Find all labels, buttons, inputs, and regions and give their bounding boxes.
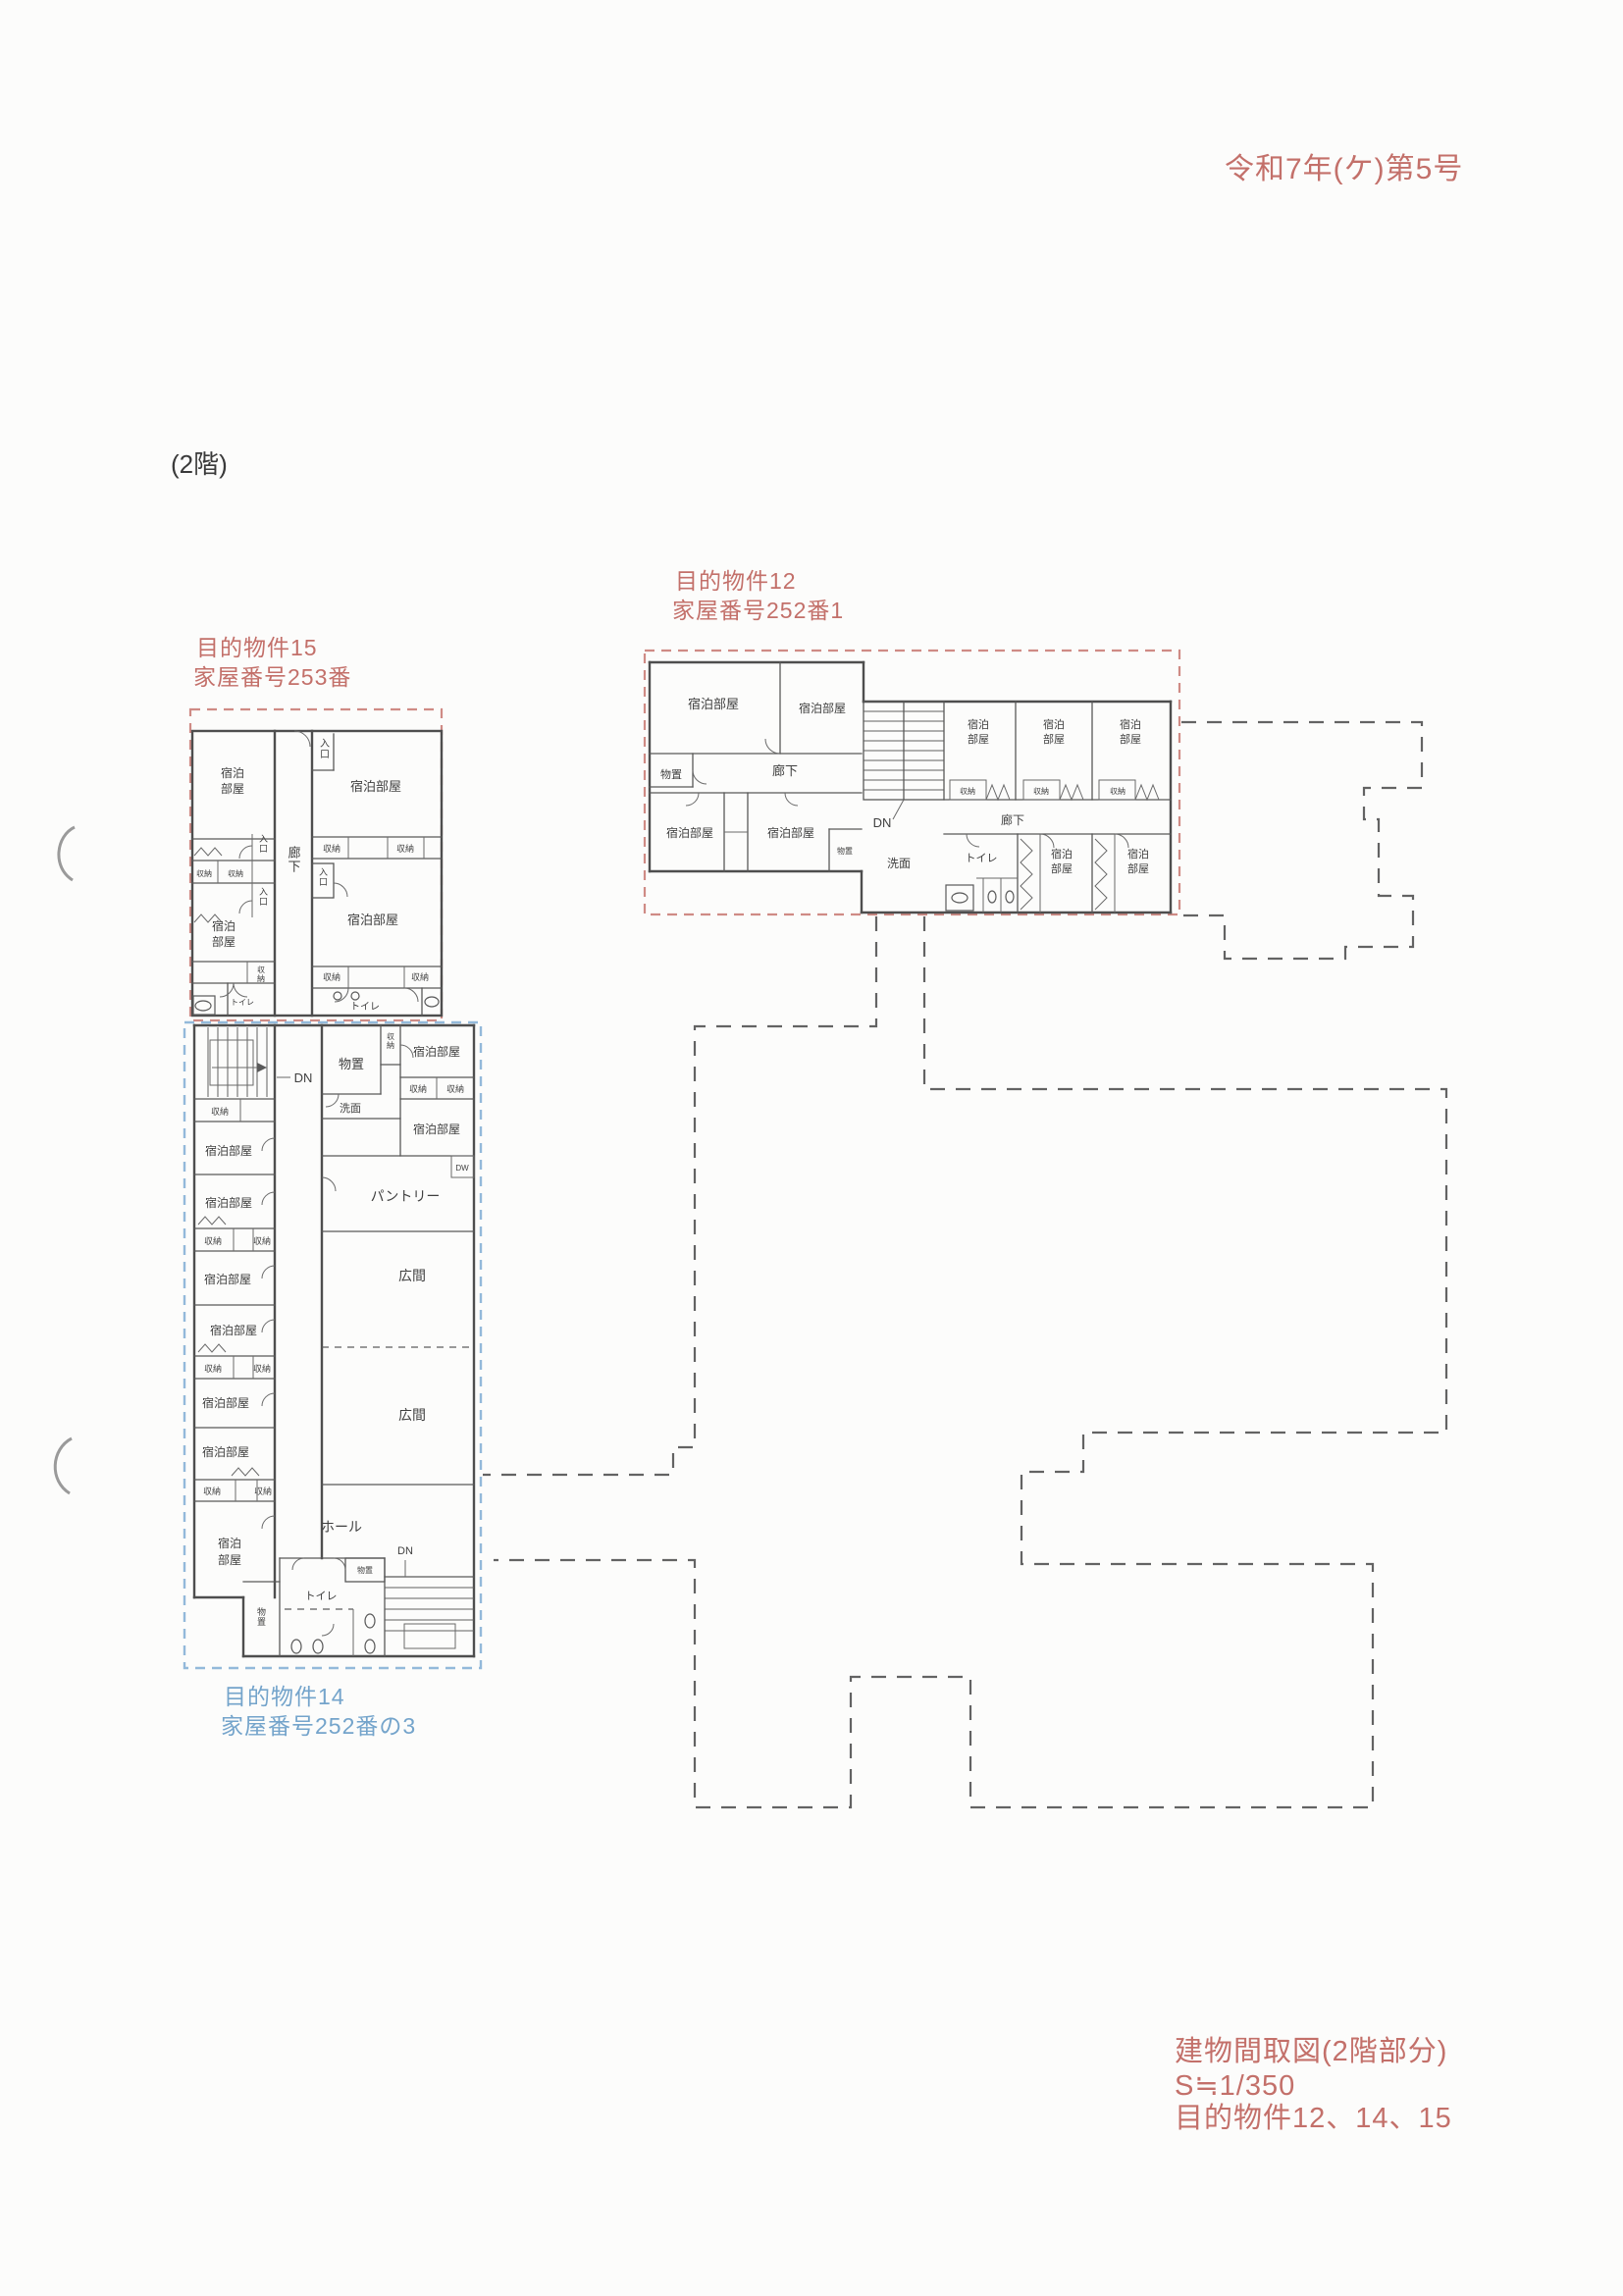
storage-label: 収納 bbox=[409, 1083, 427, 1094]
corridor-label: 廊下 bbox=[287, 845, 301, 873]
storage-label: 収納 bbox=[203, 1486, 221, 1496]
corridor-label: 廊下 bbox=[772, 763, 798, 778]
room-label-guest: 宿泊部屋 bbox=[347, 913, 398, 927]
entrance-label: 入口 bbox=[258, 887, 268, 907]
storage-label: 収納 bbox=[204, 1235, 222, 1246]
room-label-guest: 部屋 bbox=[218, 1552, 241, 1567]
room-label-guest: 宿泊部屋 bbox=[204, 1272, 251, 1286]
storage-label: 収納 bbox=[396, 843, 414, 854]
room-label-guest: 宿泊 bbox=[212, 918, 236, 933]
toilet-label: トイレ bbox=[350, 1002, 380, 1013]
room-label-guest: 宿泊部屋 bbox=[210, 1323, 257, 1337]
room-label-guest: 宿泊 bbox=[221, 765, 244, 780]
hall-label: 広間 bbox=[398, 1407, 426, 1423]
storeroom-label: 物置 bbox=[837, 846, 853, 856]
titleblock-title: 建物間取図(2階部分) bbox=[1175, 2035, 1447, 2067]
dumbwaiter-label: DW bbox=[455, 1164, 469, 1173]
storage-label: 収納 bbox=[446, 1083, 464, 1094]
room-label-guest: 宿泊部屋 bbox=[666, 825, 713, 840]
room-label-guest: 宿泊 bbox=[1120, 717, 1141, 731]
storage-label: 収納 bbox=[254, 1486, 272, 1496]
property-15-label-line1: 目的物件15 bbox=[196, 635, 318, 660]
toilet-label: トイレ bbox=[966, 853, 998, 864]
room-label-guest: 宿泊 bbox=[218, 1536, 241, 1550]
room-label-guest: 部屋 bbox=[1051, 861, 1073, 875]
room-label-guest: 宿泊部屋 bbox=[350, 779, 401, 794]
room-label-guest: 部屋 bbox=[1043, 732, 1065, 746]
building-15-plan: 宿泊 部屋 入口 宿泊部屋 収納 収納 入口 収納 収納 廊下 入口 入口 宿泊… bbox=[190, 709, 442, 1020]
toilet-label: トイレ bbox=[231, 998, 254, 1007]
property-12-label-line2: 家屋番号252番1 bbox=[672, 598, 844, 623]
titleblock-subjects: 目的物件12、14、15 bbox=[1175, 2102, 1452, 2134]
room-label-guest: 宿泊部屋 bbox=[205, 1195, 252, 1210]
property-14-label-line1: 目的物件14 bbox=[224, 1684, 345, 1709]
pantry-label: パントリー bbox=[371, 1188, 441, 1204]
storeroom-label: 物置 bbox=[660, 767, 682, 781]
entrance-label: 入口 bbox=[258, 834, 268, 854]
storage-label: 収納 bbox=[1110, 786, 1126, 796]
document-page: 令和7年(ケ)第5号 (2階) 目的物件15 家屋番号253番 目的物件12 家… bbox=[0, 0, 1623, 2296]
washroom-label: 洗面 bbox=[340, 1102, 361, 1115]
room-label-guest: 部屋 bbox=[221, 781, 244, 796]
case-number: 令和7年(ケ)第5号 bbox=[1225, 153, 1463, 185]
room-label-guest: 部屋 bbox=[1120, 732, 1141, 746]
storage-label: 収納 bbox=[253, 1363, 271, 1374]
storage-label: 収納 bbox=[960, 786, 975, 796]
building-12-plan: 宿泊部屋 宿泊部屋 物置 廊下 宿泊部屋 宿泊部屋 物置 DN 洗面 宿泊 部屋… bbox=[645, 651, 1179, 914]
stairs-down-label: DN bbox=[294, 1070, 313, 1085]
storage-label: 収納 bbox=[253, 1235, 271, 1246]
room-label-guest: 宿泊部屋 bbox=[688, 697, 739, 711]
property-14-label-line2: 家屋番号252番の3 bbox=[221, 1713, 416, 1739]
room-label-guest: 宿泊部屋 bbox=[799, 701, 846, 715]
room-label-guest: 宿泊部屋 bbox=[205, 1143, 252, 1158]
storeroom-label: 物置 bbox=[256, 1606, 266, 1627]
room-label-guest: 宿泊部屋 bbox=[767, 825, 814, 840]
storage-label: 収納 bbox=[411, 971, 429, 982]
storage-label: 収納 bbox=[196, 868, 212, 878]
stairs-down-label: DN bbox=[397, 1545, 413, 1557]
property-15-label-line2: 家屋番号253番 bbox=[193, 664, 351, 690]
storage-label: 収納 bbox=[211, 1106, 229, 1117]
corridor-label: 廊下 bbox=[1001, 812, 1024, 827]
room-label-guest: 部屋 bbox=[1127, 861, 1149, 875]
storage-label: 収納 bbox=[323, 843, 340, 854]
property-12-label-line1: 目的物件12 bbox=[675, 568, 797, 594]
storage-label: 収納 bbox=[1033, 786, 1049, 796]
floor-label: (2階) bbox=[171, 449, 228, 479]
storage-label: 収納 bbox=[323, 971, 340, 982]
toilet-label: トイレ bbox=[305, 1591, 338, 1602]
storage-label: 収納 bbox=[228, 868, 243, 878]
room-label-guest: 部屋 bbox=[212, 934, 236, 949]
entrance-label: 入口 bbox=[318, 867, 328, 887]
storeroom-label: 物置 bbox=[339, 1057, 364, 1071]
storage-label: 収納 bbox=[257, 965, 266, 983]
room-label-guest: 部屋 bbox=[968, 732, 989, 746]
storage-label: 収納 bbox=[387, 1031, 395, 1050]
floorplan-drawing: 令和7年(ケ)第5号 (2階) 目的物件15 家屋番号253番 目的物件12 家… bbox=[0, 0, 1623, 2296]
storage-label: 収納 bbox=[204, 1363, 222, 1374]
hall-label: ホール bbox=[321, 1519, 362, 1535]
room-label-guest: 宿泊 bbox=[1043, 717, 1065, 731]
stairs-down-label: DN bbox=[873, 815, 892, 830]
building-14-plan: DN 収納 物置 収納 宿泊部屋 洗面 収納 収納 宿泊部屋 パントリー DW … bbox=[184, 1022, 481, 1668]
room-label-guest: 宿泊部屋 bbox=[202, 1395, 249, 1410]
storeroom-label: 物置 bbox=[357, 1565, 373, 1575]
room-label-guest: 宿泊 bbox=[1127, 847, 1149, 861]
room-label-guest: 宿泊 bbox=[968, 717, 989, 731]
hall-label: 広間 bbox=[398, 1268, 426, 1283]
room-label-guest: 宿泊部屋 bbox=[413, 1044, 460, 1059]
room-label-guest: 宿泊部屋 bbox=[202, 1444, 249, 1459]
entrance-label: 入口 bbox=[318, 738, 330, 759]
titleblock-scale: S≒1/350 bbox=[1175, 2070, 1295, 2102]
room-label-guest: 宿泊部屋 bbox=[413, 1122, 460, 1136]
binder-marks bbox=[55, 827, 75, 1493]
washroom-label: 洗面 bbox=[887, 857, 911, 870]
room-label-guest: 宿泊 bbox=[1051, 847, 1073, 861]
